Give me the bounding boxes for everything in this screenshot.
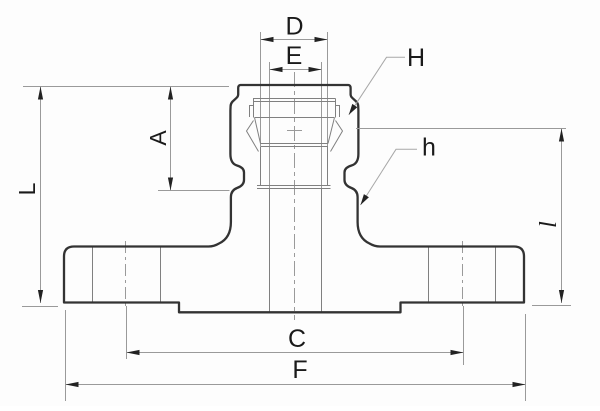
svg-text:l: l: [536, 221, 562, 228]
svg-text:L: L: [14, 182, 40, 195]
svg-text:H: H: [407, 44, 425, 72]
svg-text:C: C: [288, 325, 306, 353]
svg-text:h: h: [422, 134, 436, 162]
svg-text:E: E: [286, 42, 303, 70]
svg-text:D: D: [285, 13, 303, 41]
svg-text:A: A: [145, 130, 171, 146]
svg-text:F: F: [292, 356, 307, 384]
